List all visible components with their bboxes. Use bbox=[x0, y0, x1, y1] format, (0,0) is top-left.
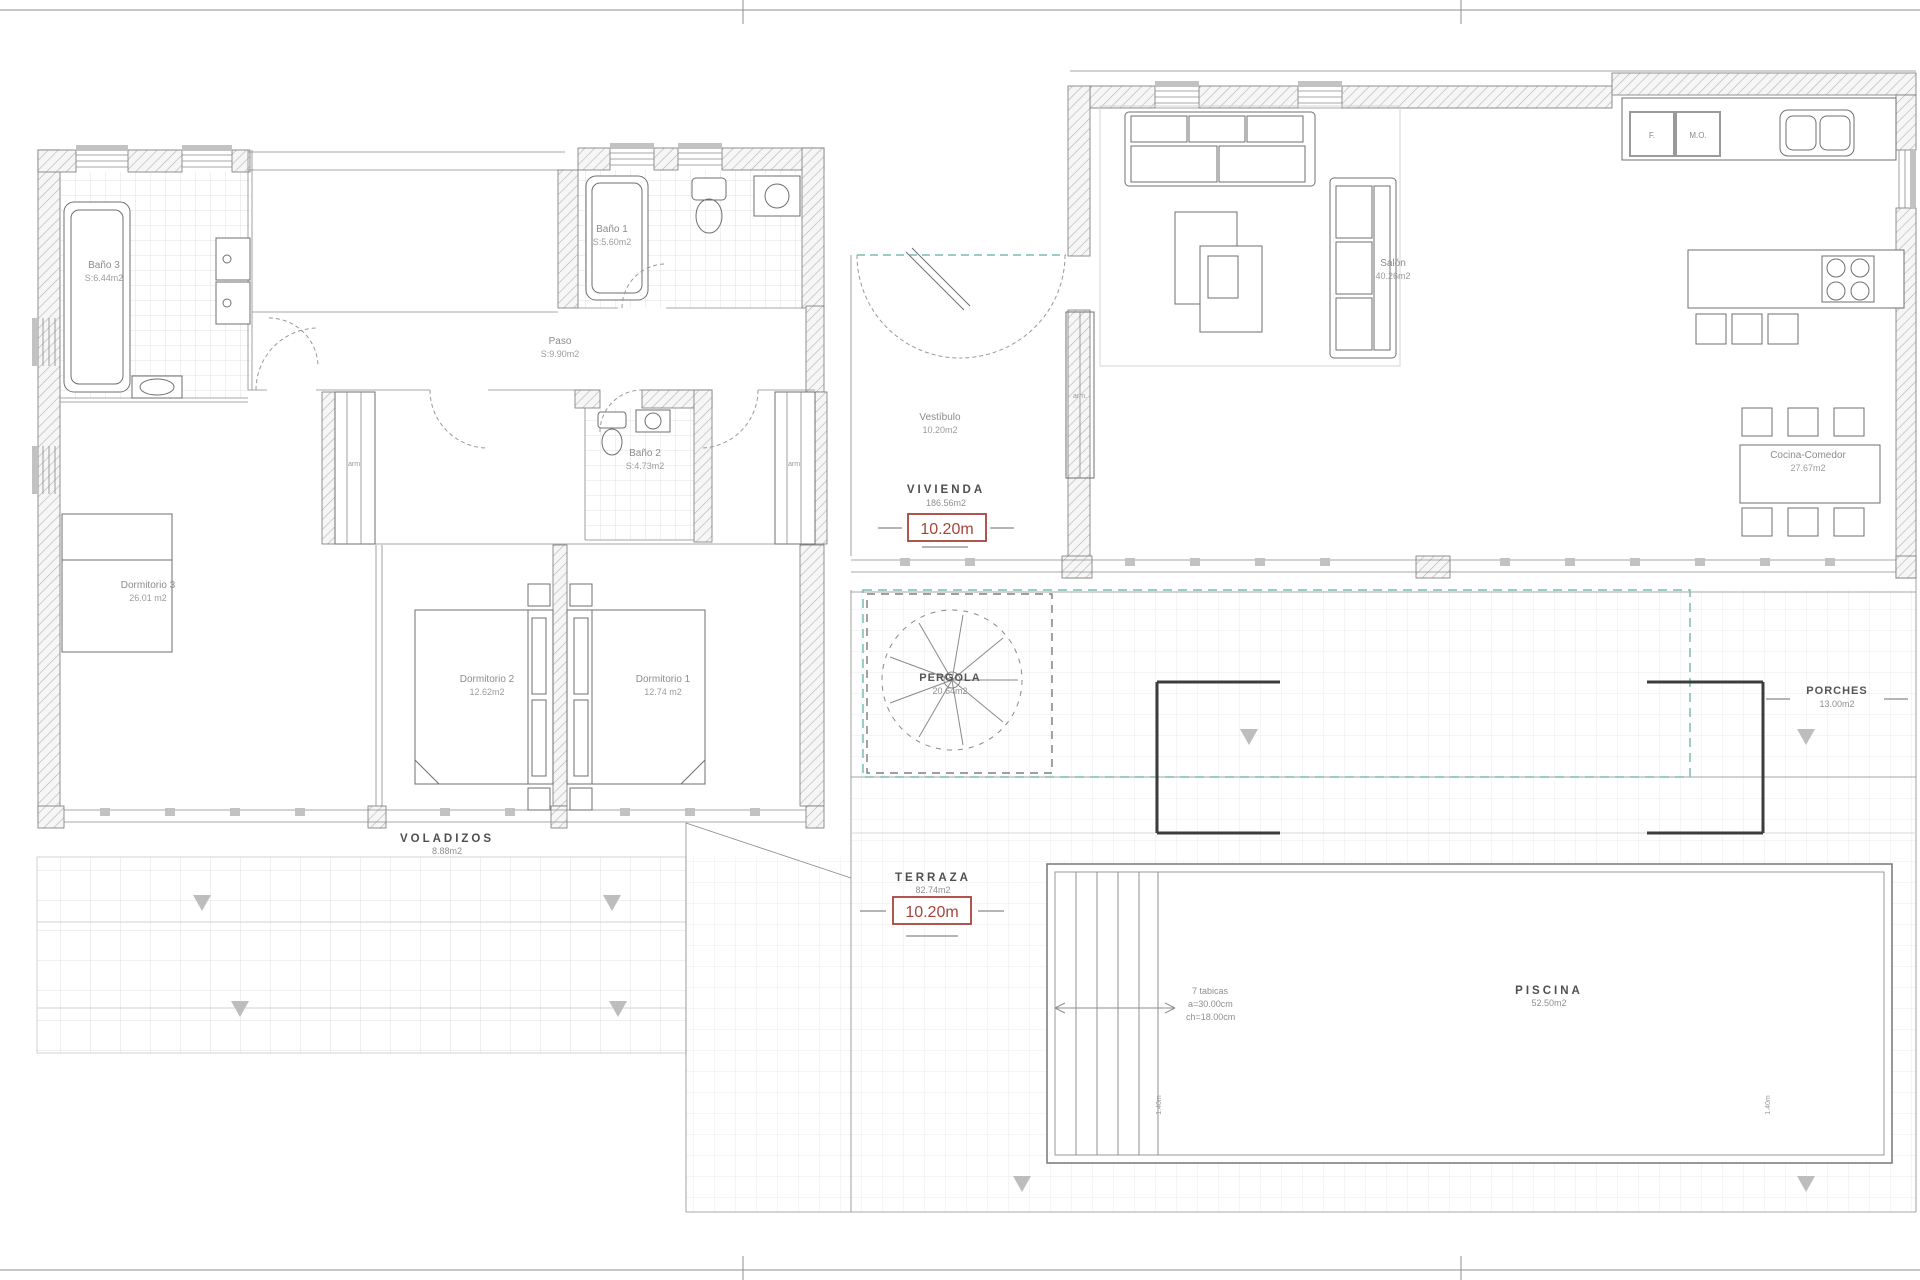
vestibule: arm. Vestíbulo 10.20m2 bbox=[851, 248, 1094, 556]
microwave-label: M.O. bbox=[1689, 131, 1706, 140]
chair-icon bbox=[1834, 508, 1864, 536]
glass-wall-south bbox=[64, 808, 806, 822]
room-label-salon: Salón bbox=[1380, 258, 1406, 269]
zone-area-voladizos: 8.88m2 bbox=[432, 846, 462, 856]
cabinet-icon bbox=[216, 238, 250, 280]
room-area-dormitorio1: 12.74 m2 bbox=[644, 687, 682, 697]
zone-area-terraza: 82.74m2 bbox=[915, 885, 950, 895]
bedroom1-bed bbox=[567, 584, 705, 810]
sofa-icon bbox=[1125, 112, 1315, 186]
room-label-dormitorio3: Dormitorio 3 bbox=[121, 580, 176, 591]
salon-furniture bbox=[1100, 106, 1400, 366]
room-area-dormitorio3: 26.01 m2 bbox=[129, 593, 167, 603]
floor-plan-drawing: Baño 3 S:6.44m2 Baño 1 S:5.60m2 Paso S:9… bbox=[0, 0, 1920, 1280]
voladizos: VOLADIZOS 8.88m2 bbox=[400, 833, 494, 856]
nightstand-icon bbox=[528, 584, 550, 606]
dimension-value-vivienda: 10.20m bbox=[920, 521, 973, 538]
zone-area-vivienda: 186.56m2 bbox=[926, 498, 966, 508]
pool-steps-note-2: a=30.00cm bbox=[1188, 999, 1233, 1009]
closets bbox=[335, 392, 815, 544]
room-label-paso: Paso bbox=[549, 336, 572, 347]
floor-plan-sheet: Baño 3 S:6.44m2 Baño 1 S:5.60m2 Paso S:9… bbox=[0, 0, 1920, 1280]
double-sink-icon bbox=[1780, 110, 1854, 156]
stool-icon bbox=[1696, 314, 1726, 344]
kitchen: F. M.O. bbox=[1622, 98, 1904, 536]
closet-label: arm. bbox=[788, 461, 802, 468]
living-wing: F. M.O. bbox=[851, 71, 1916, 578]
room-label-dormitorio1: Dormitorio 1 bbox=[636, 674, 691, 685]
sink-icon bbox=[754, 176, 800, 216]
pool-outline bbox=[1047, 864, 1892, 1163]
zone-label-terraza: TERRAZA bbox=[895, 872, 971, 884]
cabinet-icon bbox=[216, 282, 250, 324]
zone-label-piscina: PISCINA bbox=[1515, 985, 1583, 997]
room-label-cocina: Cocina-Comedor bbox=[1770, 450, 1846, 461]
closet-label: arm. bbox=[348, 461, 362, 468]
nightstand-icon bbox=[570, 788, 592, 810]
zone-label-vivienda: VIVIENDA bbox=[907, 484, 985, 496]
room-label-vestibulo: Vestíbulo bbox=[919, 412, 961, 423]
room-area-cocina: 27.67m2 bbox=[1790, 463, 1825, 473]
chair-icon bbox=[1788, 408, 1818, 436]
room-area-dormitorio2: 12.62m2 bbox=[469, 687, 504, 697]
nightstand-icon bbox=[570, 584, 592, 606]
zone-area-piscina: 52.50m2 bbox=[1531, 998, 1566, 1008]
room-area-paso: S:9.90m2 bbox=[541, 349, 580, 359]
bathtub-icon bbox=[64, 202, 130, 392]
zone-label-porches: PORCHES bbox=[1806, 685, 1867, 697]
chair-icon bbox=[1788, 508, 1818, 536]
zone-area-pergola: 20.64m2 bbox=[932, 686, 967, 696]
zone-label-voladizos: VOLADIZOS bbox=[400, 833, 494, 845]
glass-wall-south bbox=[851, 558, 1896, 572]
stool-icon bbox=[1732, 314, 1762, 344]
vivienda-label-block: VIVIENDA 186.56m2 10.20m bbox=[878, 484, 1014, 547]
pool-steps-note-3: ch=18.00cm bbox=[1186, 1012, 1235, 1022]
room-area-bano2: S:4.73m2 bbox=[626, 461, 665, 471]
bedroom2-bed bbox=[415, 584, 553, 810]
room-area-bano1: S:5.60m2 bbox=[593, 237, 632, 247]
toilet-icon bbox=[692, 178, 726, 200]
room-label-bano3: Baño 3 bbox=[88, 260, 120, 271]
pool-depth-mark: 1.40m bbox=[1156, 1095, 1163, 1115]
chair-icon bbox=[1742, 408, 1772, 436]
room-area-salon: 40.26m2 bbox=[1375, 271, 1410, 281]
nightstand-icon bbox=[528, 788, 550, 810]
toilet-icon bbox=[598, 412, 626, 428]
closet-label: arm. bbox=[1073, 393, 1087, 400]
room-area-bano3: S:6.44m2 bbox=[85, 273, 124, 283]
room-label-bano2: Baño 2 bbox=[629, 448, 661, 459]
closet-icon bbox=[775, 392, 815, 544]
zone-label-pergola: PERGOLA bbox=[919, 672, 980, 684]
pool-depth-mark: 1.40m bbox=[1765, 1095, 1772, 1115]
room-label-bano1: Baño 1 bbox=[596, 224, 628, 235]
dimension-value-terraza: 10.20m bbox=[905, 904, 958, 921]
room-area-vestibulo: 10.20m2 bbox=[922, 425, 957, 435]
chair-icon bbox=[1742, 508, 1772, 536]
pool-steps-note-1: 7 tabicas bbox=[1192, 986, 1229, 996]
chair-icon bbox=[1834, 408, 1864, 436]
stool-icon bbox=[1768, 314, 1798, 344]
closet-icon bbox=[335, 392, 375, 544]
coffee-table-icon bbox=[1175, 212, 1262, 332]
bedroom-wing: Baño 3 S:6.44m2 Baño 1 S:5.60m2 Paso S:9… bbox=[32, 143, 827, 828]
room-label-dormitorio2: Dormitorio 2 bbox=[460, 674, 515, 685]
fridge-label: F. bbox=[1649, 131, 1655, 140]
kitchen-island bbox=[1688, 250, 1904, 344]
pool: 7 tabicas a=30.00cm ch=18.00cm PISCINA 5… bbox=[1047, 864, 1892, 1163]
zone-area-porches: 13.00m2 bbox=[1819, 699, 1854, 709]
